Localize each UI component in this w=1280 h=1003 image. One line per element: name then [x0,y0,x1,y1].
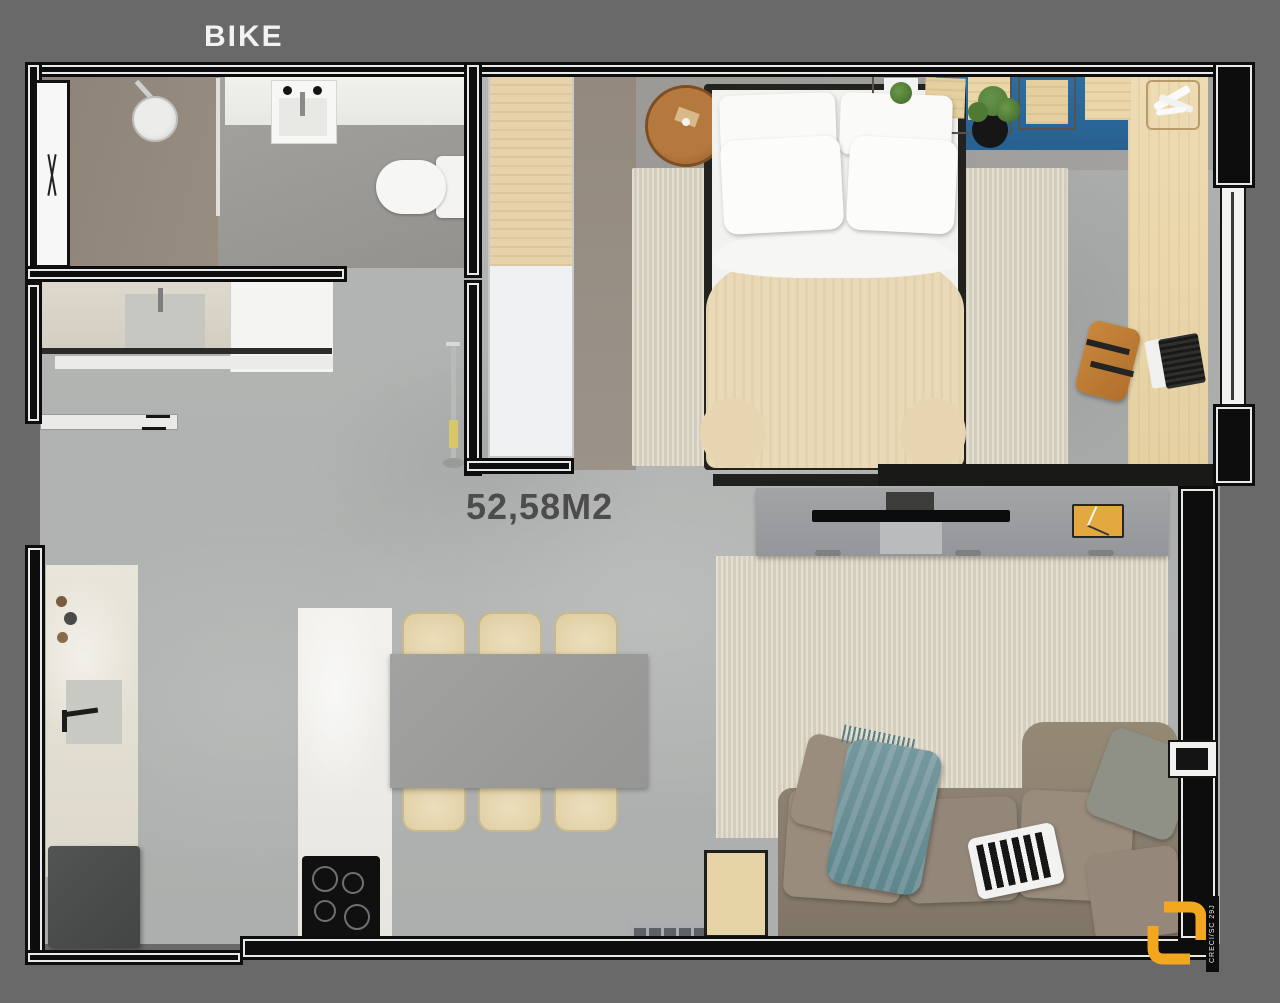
bike-storage-label: BIKE [204,20,284,54]
bedroom-floor-strip [574,76,636,470]
cooktop [302,856,380,942]
shelf-box-wood-4 [1085,76,1131,120]
console-handle-1 [815,550,841,556]
fridge [48,846,140,948]
sofa-side-table [704,850,768,938]
dining-table [390,654,648,788]
cooktop-burner-2 [342,872,364,894]
cooktop-burner-1 [312,866,338,892]
coat-stand-accent [449,420,458,448]
wall-bottom-main [240,936,1218,960]
kitchen-sink-faucet [158,288,163,312]
sink-faucet [300,92,305,116]
shelf-plant-small [890,82,912,104]
tv-screen [812,510,1010,522]
laptop-keyboard [1158,333,1206,389]
shelf-box-wood-3 [1026,80,1068,124]
desk [1128,72,1208,478]
cooktop-burner-3 [314,900,336,922]
bed-blanket-corner-right [900,398,966,468]
wall-top [25,62,1255,77]
wardrobe-wood-shelf [490,76,572,266]
coat-stand-base [443,458,464,468]
shower-head [132,96,178,142]
tv-stand-base [880,522,942,554]
window-right-lower-glass [1176,748,1208,770]
plant-foliage-2 [996,98,1020,122]
apartment-area-label: 52,58M2 [466,486,613,528]
plant-foliage-3 [968,102,988,122]
tv-half-wall-left [713,474,881,486]
wall-bathroom-right [464,62,482,278]
wall-bathroom-bottom [25,266,347,282]
shower-glass-partition [216,78,220,216]
counter-jar-3 [57,632,68,643]
sink-faucet-handle-right [313,86,322,95]
wall-entry-right [464,280,482,476]
sink-faucet-handle-left [283,86,292,95]
wall-entry-corner [464,458,574,474]
coat-stand-hook [446,342,460,346]
wall-bottom-left [25,950,243,965]
table-lamp-cord-dot [682,118,690,126]
console-handle-2 [955,550,981,556]
wall-right-mid [1213,404,1255,486]
kitchen-counter-edge [42,348,332,354]
agency-logo [1146,900,1208,966]
counter-jar-1 [56,596,67,607]
kitchen-sink [125,294,205,352]
wall-right-lower [1178,486,1218,941]
bed-pillow-right [846,135,959,235]
sliding-door-handle-top [146,415,170,418]
bed-blanket-corner-left [700,398,766,468]
bathroom-vanity-counter [225,76,465,125]
toilet-bowl [376,160,446,214]
pantry-faucet-spout [62,710,67,732]
counter-jar-2 [64,612,77,625]
sliding-door-handle-bottom [142,427,166,430]
console-handle-3 [1088,550,1114,556]
window-left [34,80,70,268]
tv-half-wall-right [878,464,1213,486]
kitchen-lower-shelf [55,356,333,369]
wall-kitchen-left [25,282,42,424]
creci-registration-text: CRECI/SC 29J [1206,896,1219,972]
wall-right-top [1213,62,1255,188]
cooktop-burner-4 [344,904,370,930]
bed-pillow-left [720,135,845,235]
window-right-top-glass-line [1231,192,1234,400]
wall-left-lower [25,545,45,965]
floor-plan: BIKE 52,58M2 [0,0,1280,1003]
